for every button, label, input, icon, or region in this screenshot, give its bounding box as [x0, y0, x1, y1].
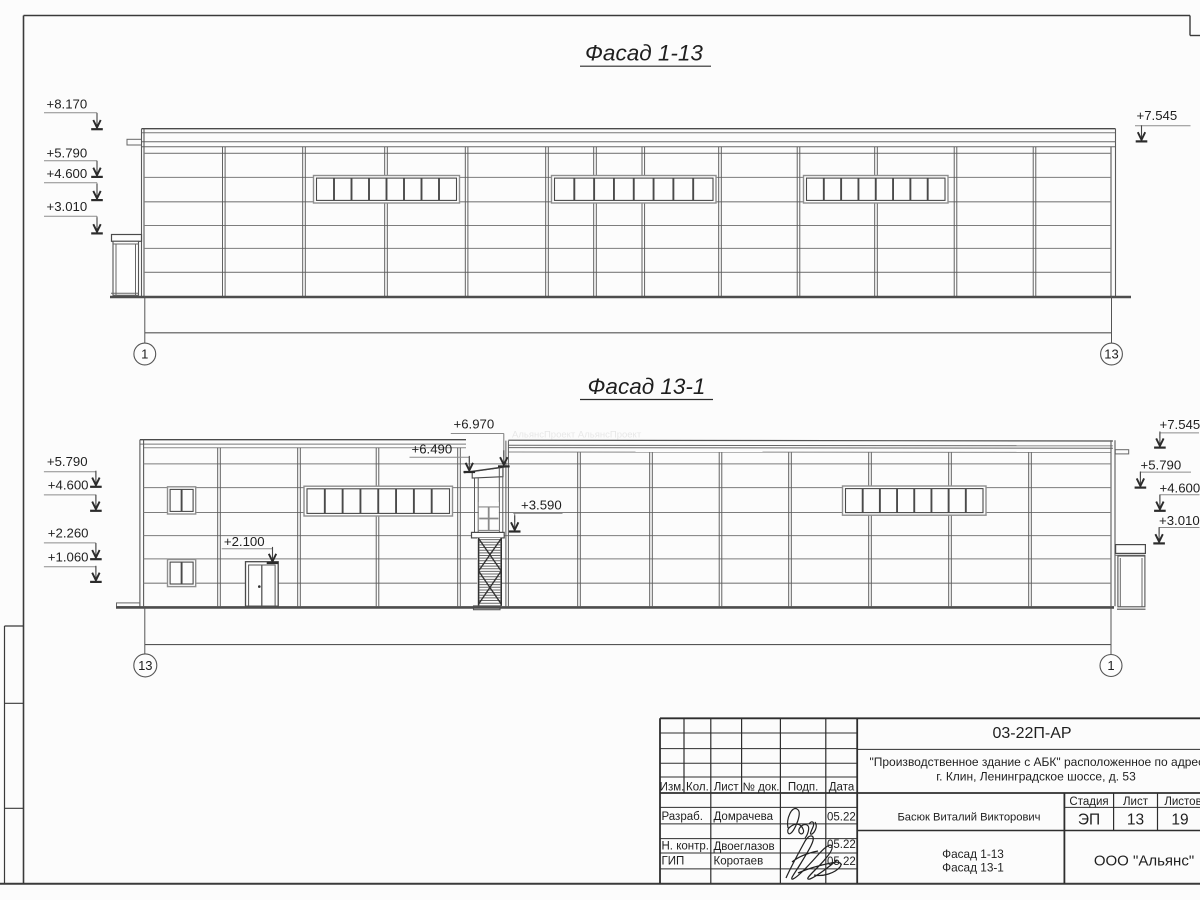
- svg-text:+2.100: +2.100: [224, 534, 265, 549]
- svg-text:+5.790: +5.790: [47, 454, 88, 469]
- svg-text:Лист: Лист: [714, 782, 740, 794]
- svg-text:Фасад 1-13: Фасад 1-13: [942, 847, 1004, 861]
- svg-text:05.22: 05.22: [827, 812, 856, 824]
- svg-text:+6.490: +6.490: [412, 442, 453, 457]
- svg-text:13: 13: [138, 658, 152, 673]
- svg-text:05.22: 05.22: [827, 856, 856, 868]
- svg-text:Домрачева: Домрачева: [714, 811, 774, 823]
- svg-text:Дата: Дата: [829, 782, 855, 794]
- svg-text:Фасад 13-1: Фасад 13-1: [942, 861, 1004, 875]
- svg-text:Двоеглазов: Двоеглазов: [714, 841, 775, 853]
- svg-text:АльянсПроект АльянсПроект: АльянсПроект АльянсПроект: [512, 430, 642, 441]
- svg-text:Лист: Лист: [1123, 796, 1149, 808]
- svg-text:Басюк Виталий Викторович: Басюк Виталий Викторович: [897, 812, 1040, 824]
- svg-text:Изм.: Изм.: [660, 782, 685, 794]
- svg-text:ООО "Альянс": ООО "Альянс": [1094, 852, 1194, 869]
- svg-text:"Производственное здание с АБК: "Производственное здание с АБК" располож…: [870, 755, 1200, 769]
- svg-text:Кол.: Кол.: [686, 782, 709, 794]
- svg-text:+3.010: +3.010: [1159, 513, 1200, 528]
- svg-text:+3.010: +3.010: [47, 199, 88, 214]
- svg-text:+4.600: +4.600: [48, 478, 89, 493]
- svg-text:+8.170: +8.170: [47, 97, 88, 112]
- svg-text:№ док.: № док.: [743, 782, 780, 794]
- svg-text:+2.260: +2.260: [48, 526, 89, 541]
- svg-text:+1.060: +1.060: [48, 549, 89, 564]
- svg-text:13: 13: [1127, 812, 1144, 829]
- svg-text:13: 13: [1104, 347, 1118, 362]
- svg-text:+7.545: +7.545: [1160, 417, 1200, 432]
- svg-text:Фасад 1-13: Фасад 1-13: [585, 41, 703, 66]
- svg-text:Листов: Листов: [1164, 796, 1200, 808]
- svg-text:03-22П-АР: 03-22П-АР: [992, 725, 1071, 742]
- svg-text:+5.790: +5.790: [47, 146, 88, 161]
- svg-text:Разраб.: Разраб.: [662, 811, 703, 823]
- svg-text:Стадия: Стадия: [1069, 796, 1108, 808]
- svg-text:+4.600: +4.600: [1160, 481, 1200, 496]
- svg-text:Подп.: Подп.: [788, 782, 819, 794]
- svg-text:+4.600: +4.600: [47, 166, 88, 181]
- svg-text:+5.790: +5.790: [1141, 458, 1182, 473]
- svg-text:Коротаев: Коротаев: [714, 856, 764, 868]
- svg-text:+3.590: +3.590: [521, 497, 562, 512]
- svg-text:1: 1: [141, 347, 148, 362]
- svg-text:Н. контр.: Н. контр.: [662, 841, 709, 853]
- svg-text:+7.545: +7.545: [1137, 108, 1178, 123]
- svg-text:19: 19: [1171, 812, 1188, 829]
- svg-text:г. Клин, Ленинградское шоссе,: г. Клин, Ленинградское шоссе, д. 53: [936, 769, 1136, 783]
- svg-text:1: 1: [1107, 658, 1114, 673]
- svg-text:ГИП: ГИП: [662, 856, 685, 868]
- svg-text:ЭП: ЭП: [1078, 812, 1100, 829]
- svg-text:Фасад 13-1: Фасад 13-1: [588, 374, 706, 399]
- svg-text:+6.970: +6.970: [454, 417, 495, 432]
